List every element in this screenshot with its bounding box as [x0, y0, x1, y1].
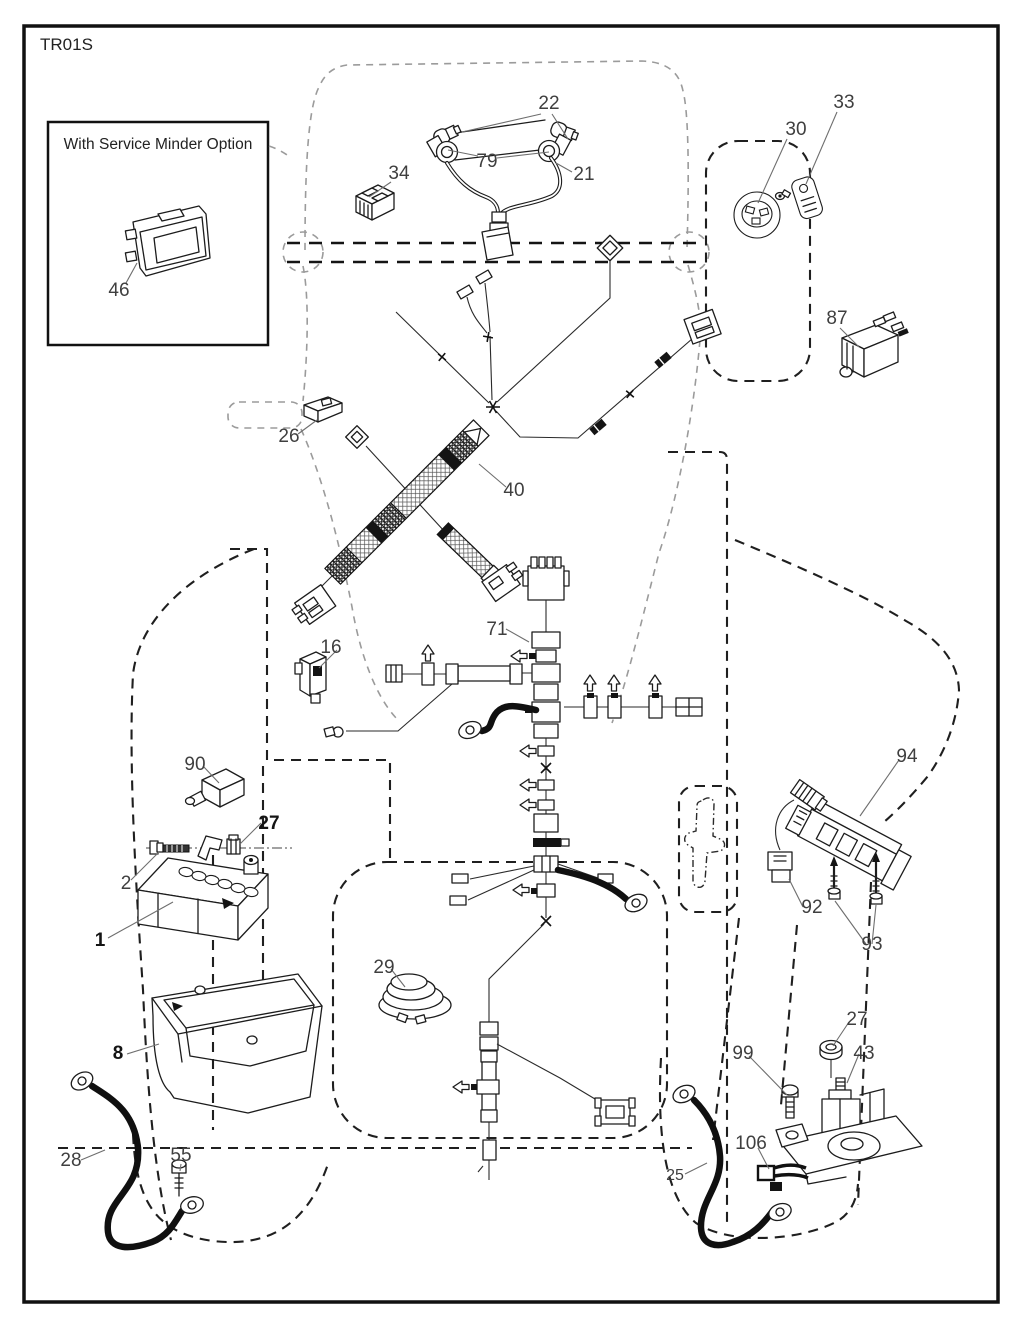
inset-title: With Service Minder Option: [64, 136, 253, 153]
part-label-34: 34: [388, 163, 410, 184]
battery-terminal-27: [227, 835, 240, 854]
page-title: TR01S: [40, 35, 93, 54]
part-label-71: 71: [486, 619, 507, 640]
part-label-28: 28: [60, 1150, 81, 1171]
part-label-25: 25: [666, 1167, 684, 1184]
part-label-99: 99: [732, 1043, 753, 1064]
part-label-1: 1: [95, 930, 106, 951]
part-label-29: 29: [373, 957, 394, 978]
part-label-43: 43: [853, 1043, 874, 1064]
part-label-27-battery: 27: [258, 813, 279, 834]
part-label-33: 33: [833, 92, 854, 113]
part-label-79: 79: [476, 151, 497, 172]
part-label-16: 16: [320, 637, 341, 658]
part-label-22: 22: [538, 93, 559, 114]
part-label-92: 92: [801, 897, 822, 918]
wiring-parts-diagram: TR01S With Service Minder Opti: [0, 0, 1024, 1331]
part-label-90: 90: [184, 754, 205, 775]
part-label-93: 93: [861, 934, 882, 955]
part-label-106: 106: [735, 1133, 767, 1154]
part-label-8: 8: [113, 1043, 124, 1064]
part-label-2: 2: [121, 873, 132, 894]
part-label-27-solenoid: 27: [846, 1009, 867, 1030]
part-label-26: 26: [278, 426, 299, 447]
part-label-21: 21: [573, 164, 594, 185]
part-label-55: 55: [170, 1145, 191, 1166]
part-label-30: 30: [785, 119, 806, 140]
service-minder-inset: With Service Minder Option: [48, 122, 291, 345]
part-label-40: 40: [503, 480, 524, 501]
parts-diagram-page: TR01S With Service Minder Opti: [0, 0, 1024, 1331]
part-label-94: 94: [896, 746, 918, 767]
part-label-46: 46: [108, 280, 129, 301]
part-label-87: 87: [826, 308, 847, 329]
seat-plug: [595, 1098, 635, 1126]
